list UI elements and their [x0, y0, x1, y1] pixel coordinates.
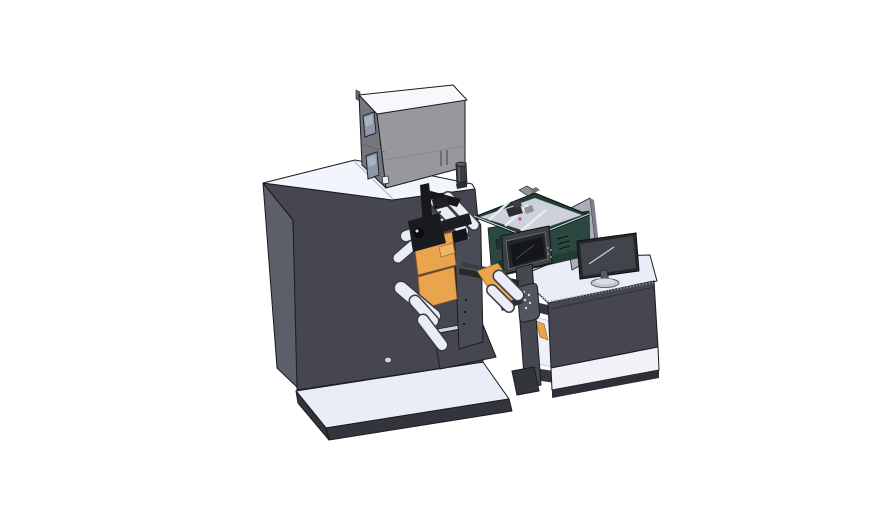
box-latch-square — [382, 176, 389, 184]
mech-bolt — [439, 211, 441, 213]
column-foot — [512, 367, 539, 395]
hmi-button — [547, 247, 549, 249]
mech-boss-highlight — [416, 230, 419, 233]
plate-screw — [465, 299, 467, 301]
control-box — [356, 85, 467, 188]
handle-dot — [525, 307, 527, 309]
tray-magenta-chip — [518, 217, 521, 220]
box-front-face — [377, 100, 465, 188]
vent-cylinder — [456, 162, 467, 189]
hmi-button — [550, 249, 552, 251]
plate-screw — [463, 323, 465, 325]
tower-face-port — [385, 357, 392, 363]
cylinder-highlight — [459, 167, 460, 183]
mech-boss — [414, 228, 425, 239]
machine-assembly-render — [0, 0, 888, 522]
handle-dot — [528, 294, 530, 296]
hmi-mount-tab — [496, 238, 503, 249]
hmi-button — [550, 256, 552, 258]
plate-screw — [464, 311, 466, 313]
handle-dot — [529, 302, 531, 304]
hmi-button — [547, 253, 549, 255]
mech-bolt — [435, 206, 437, 208]
cylinder-cap — [456, 162, 466, 166]
handle-dot — [524, 299, 526, 301]
monitor-base-top — [595, 279, 615, 285]
cad-render-canvas — [0, 0, 888, 522]
